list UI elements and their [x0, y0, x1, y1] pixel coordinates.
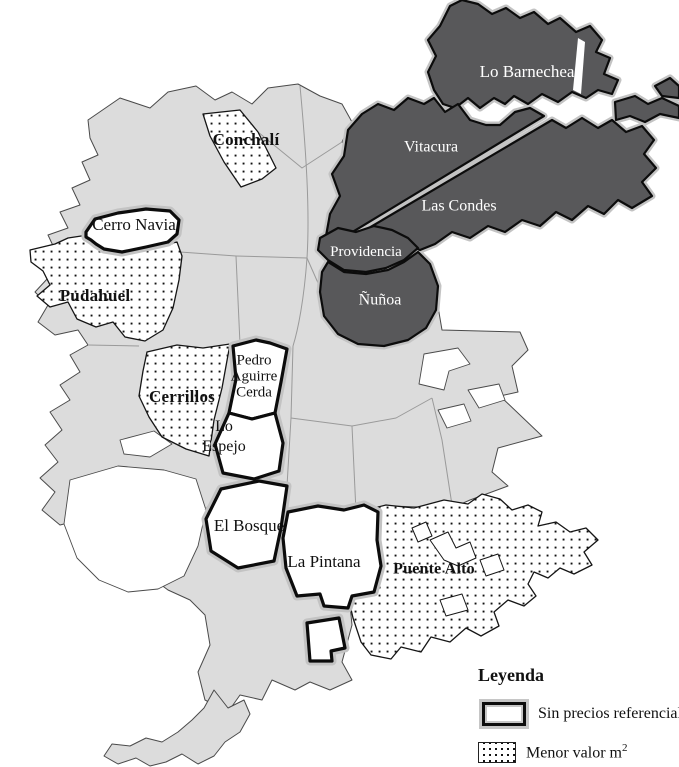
label-cerrillos: Cerrillos: [149, 388, 215, 406]
label-pudahuel: Pudahuel: [60, 287, 131, 305]
label-providencia: Providencia: [330, 245, 402, 261]
map-figure: Lo Barnechea Vitacura Las Condes Provide…: [0, 0, 679, 767]
legend-swatch-dotted-box: [478, 742, 516, 763]
label-pedro-aguirre-cerda: Pedro Aguirre Cerda: [231, 353, 278, 400]
label-la-pintana: La Pintana: [287, 553, 360, 571]
label-nunoa: Ñuñoa: [359, 293, 402, 310]
legend-swatch-outlined-box: [482, 702, 526, 726]
legend: Leyenda Sin precios referencial Menor va…: [478, 665, 679, 763]
label-lo-espejo: Lo Espejo: [202, 417, 246, 457]
label-vitacura: Vitacura: [404, 140, 458, 157]
label-las-condes: Las Condes: [421, 199, 496, 216]
legend-item-sin-precios: Sin precios referencial: [478, 699, 679, 729]
label-lo-barnechea: Lo Barnechea: [480, 63, 575, 81]
region-lo-barnechea: [428, 0, 618, 108]
label-puente-alto: Puente Alto: [393, 562, 475, 579]
legend-item-menor-valor: Menor valor m2: [478, 742, 679, 763]
label-conchali: Conchalí: [213, 131, 280, 149]
label-cerro-navia: Cerro Navia: [92, 216, 176, 234]
santiago-map-svg: [0, 0, 679, 767]
legend-title: Leyenda: [478, 665, 679, 686]
map-hole: [64, 466, 206, 592]
label-el-bosque: El Bosque: [214, 517, 284, 535]
legend-label-menor-valor: Menor valor m2: [526, 742, 627, 762]
legend-label-sin-precios: Sin precios referencial: [538, 705, 679, 723]
